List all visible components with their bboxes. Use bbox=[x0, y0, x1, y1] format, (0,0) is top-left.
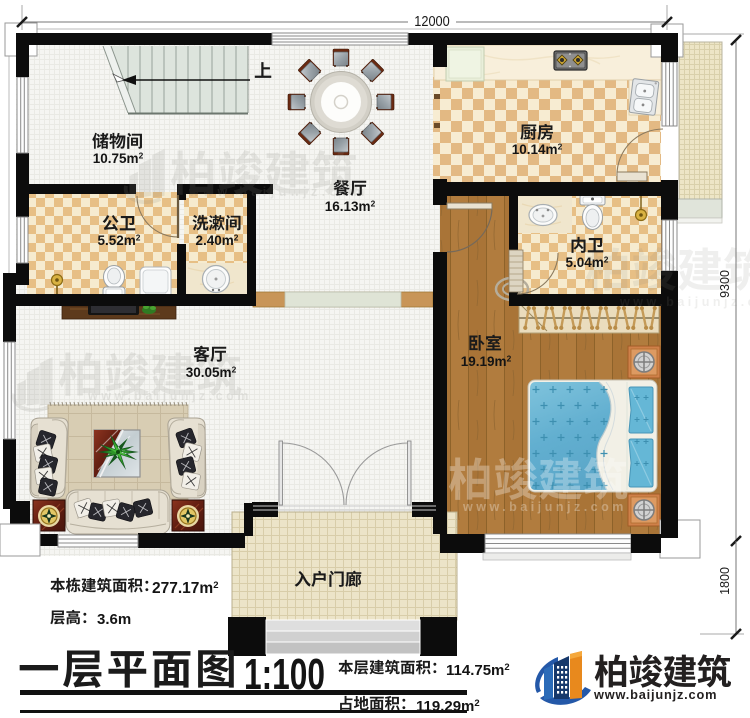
svg-text:5.52m2: 5.52m2 bbox=[98, 233, 141, 248]
svg-text:30.05m2: 30.05m2 bbox=[186, 365, 237, 380]
svg-text:3.6m: 3.6m bbox=[97, 611, 131, 628]
svg-text:114.75m2: 114.75m2 bbox=[446, 662, 510, 679]
svg-text:www.baijunjz.com: www.baijunjz.com bbox=[87, 389, 252, 403]
svg-text:16.13m2: 16.13m2 bbox=[325, 199, 376, 214]
svg-text:10.75m2: 10.75m2 bbox=[93, 151, 144, 166]
svg-text:277.17m2: 277.17m2 bbox=[152, 580, 219, 597]
svg-text:1800: 1800 bbox=[718, 567, 732, 595]
svg-text:19.19m2: 19.19m2 bbox=[461, 354, 512, 369]
svg-text:9300: 9300 bbox=[718, 270, 732, 298]
svg-text:www.baijunjz.com: www.baijunjz.com bbox=[462, 500, 627, 514]
svg-text:2.40m2: 2.40m2 bbox=[196, 233, 239, 248]
svg-text:www.baijunjz.com: www.baijunjz.com bbox=[593, 687, 717, 702]
svg-text:5.04m2: 5.04m2 bbox=[566, 255, 609, 270]
svg-text:10.14m2: 10.14m2 bbox=[512, 142, 563, 157]
svg-text:12000: 12000 bbox=[414, 13, 450, 29]
svg-text:119.29m2: 119.29m2 bbox=[416, 698, 480, 715]
